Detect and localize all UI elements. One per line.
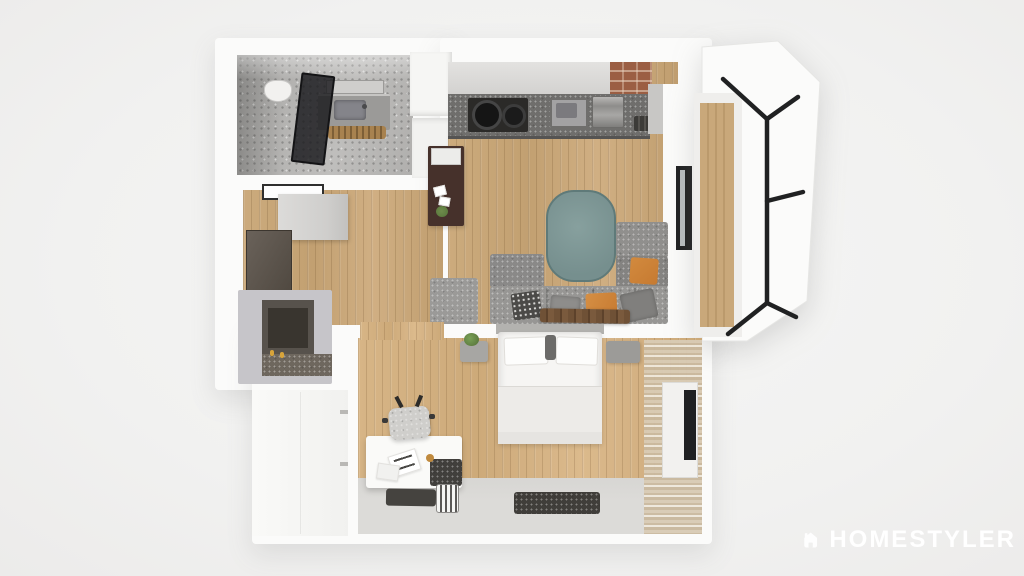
- living-window-glass: [680, 170, 685, 246]
- bed-foot-band: [498, 432, 602, 444]
- faucet: [362, 104, 367, 109]
- console-plant: [436, 206, 448, 217]
- vanity-mirror: [326, 80, 384, 94]
- desk-dark-box: [430, 459, 462, 486]
- patterned-pillow: [510, 290, 542, 321]
- teal-mat: [546, 190, 616, 282]
- orange-pillow-back: [629, 257, 659, 285]
- candle-2: [280, 352, 284, 358]
- pot-small: [502, 104, 526, 128]
- closet-handle-1: [340, 410, 348, 414]
- wood-bench: [540, 308, 630, 324]
- desk-paper-2: [376, 463, 400, 482]
- bed-pillow-right: [556, 336, 599, 365]
- book-stack: [436, 484, 459, 513]
- fireplace-core: [268, 308, 308, 348]
- bathroom-sink: [334, 100, 366, 120]
- floor-shelf-bar: [386, 489, 436, 507]
- bed-pillow-left: [504, 336, 549, 366]
- toilet: [264, 80, 292, 102]
- console-drawers: [431, 148, 461, 165]
- bedroom-window-dark: [684, 390, 696, 460]
- wood-bath-mat: [328, 126, 386, 139]
- homestyler-logo-icon: [800, 520, 821, 560]
- floor-plan-render: HOMESTYLER: [0, 0, 1024, 576]
- nightstand-right: [606, 341, 640, 363]
- sofa-back-left: [490, 254, 544, 288]
- nightstand-plant: [464, 333, 479, 346]
- sofa-chaise-left: [430, 278, 478, 324]
- dark-rug: [514, 492, 600, 514]
- appliance: [592, 96, 624, 128]
- fireplace-hearth: [262, 354, 332, 376]
- closet-seam: [300, 392, 301, 534]
- candle-1: [270, 350, 274, 356]
- entry-closet-upper: [410, 52, 452, 116]
- kitchen-sink-basin: [556, 103, 577, 118]
- watermark-brand: HOMESTYLER: [829, 526, 1016, 554]
- watermark: HOMESTYLER: [800, 516, 1016, 564]
- bed-accent-cushion: [545, 335, 556, 360]
- balcony-wood-deck: [700, 103, 734, 327]
- chair-leg-3: [382, 418, 388, 423]
- desk-chair: [388, 405, 432, 440]
- pot-large: [472, 100, 502, 130]
- bed-duvet-fold: [498, 386, 602, 435]
- bedroom-doorway-floor: [360, 322, 444, 340]
- balcony: [690, 35, 830, 350]
- pencil-cup: [426, 454, 434, 462]
- closet-handle-2: [340, 462, 348, 466]
- sofa-back-right-top: [616, 222, 668, 258]
- chair-leg-4: [429, 414, 435, 419]
